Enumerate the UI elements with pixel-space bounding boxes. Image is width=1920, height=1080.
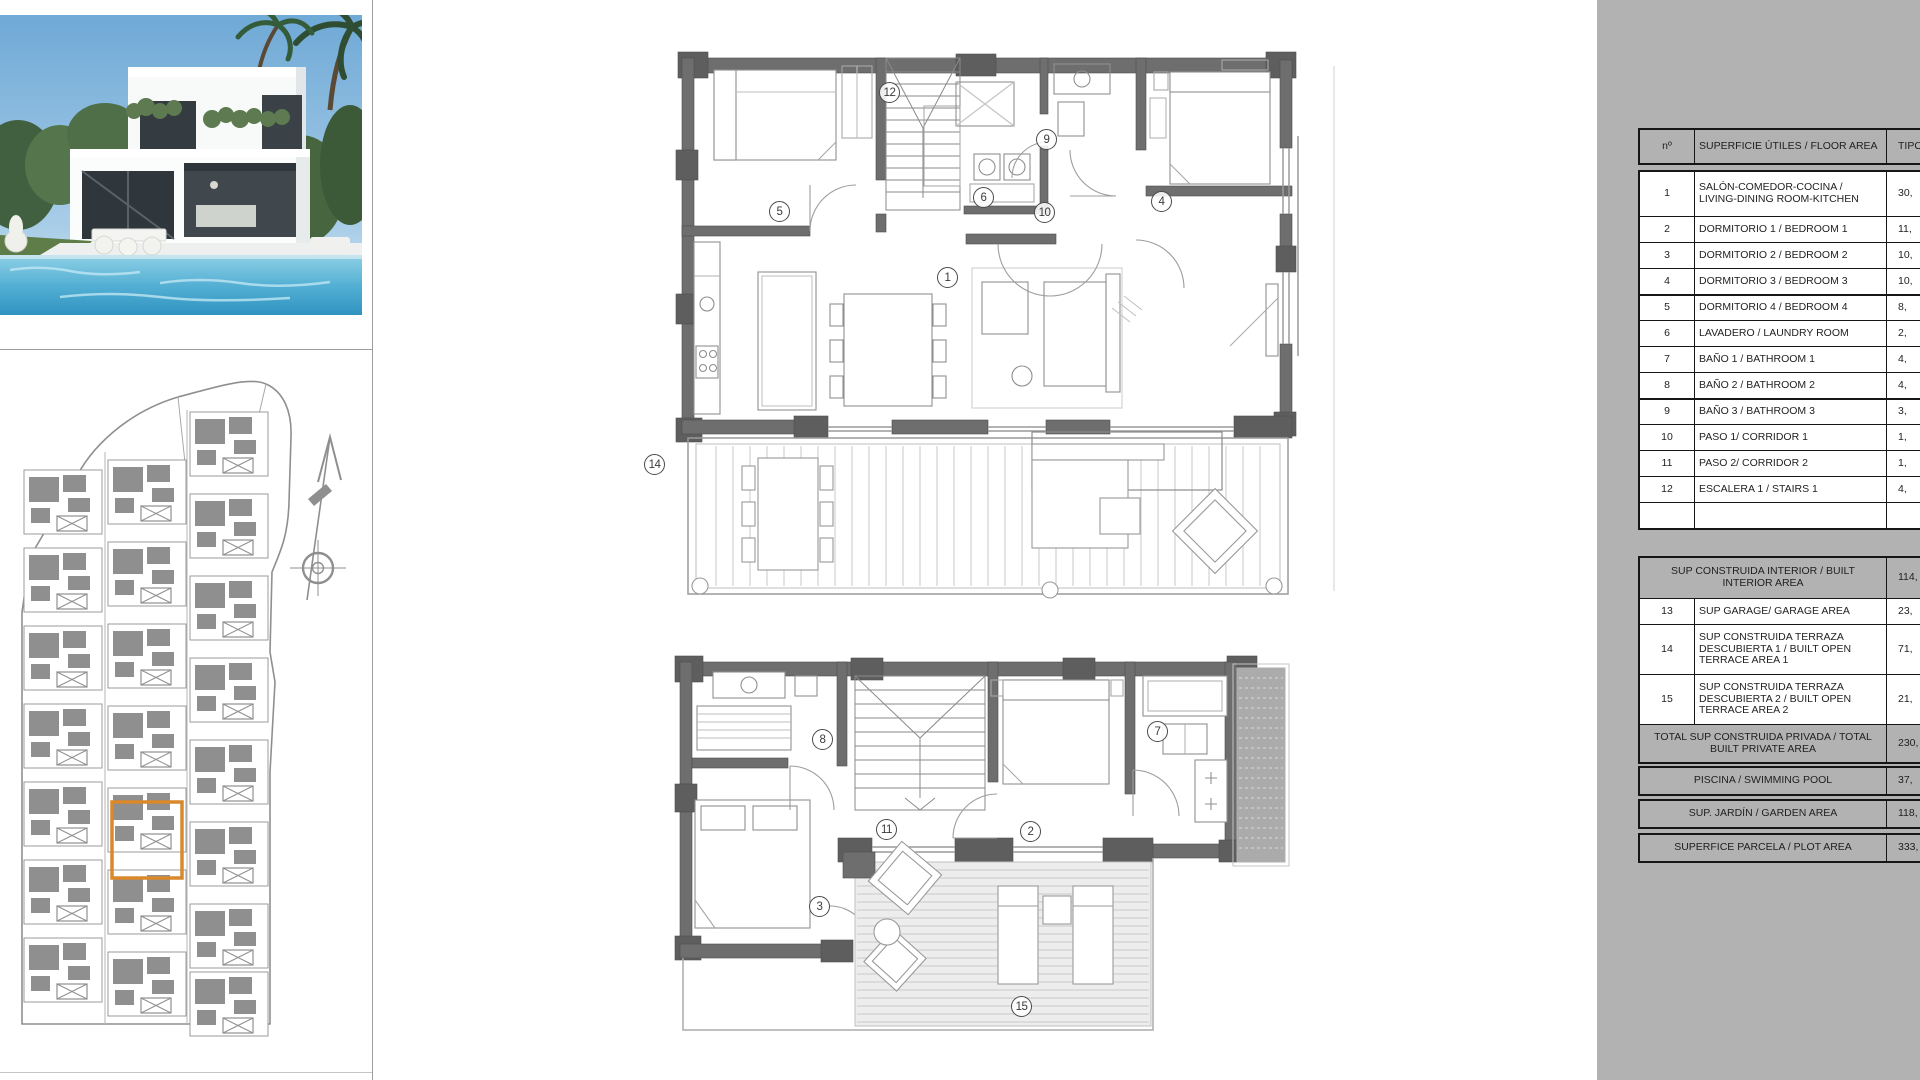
summary-row-interior: SUP CONSTRUIDA INTERIOR / BUILT INTERIOR… — [1640, 558, 1920, 598]
cell-label: SUPERFICIE ÚTILES / FLOOR AREA — [1694, 130, 1886, 163]
villa-photo-art — [0, 15, 362, 315]
cell-value: 3, — [1886, 400, 1920, 424]
table-row: 7BAÑO 1 / BATHROOM 14, — [1640, 346, 1920, 372]
room-marker-6: 6 — [973, 187, 994, 208]
cell-num: 3 — [1640, 243, 1694, 268]
cell-value: 23, — [1886, 599, 1920, 624]
cell-label: SUP. JARDÍN / GARDEN AREA — [1640, 801, 1886, 827]
table-row: 9BAÑO 3 / BATHROOM 33, — [1640, 398, 1920, 424]
cell-label: BAÑO 3 / BATHROOM 3 — [1694, 400, 1886, 424]
cell-label: PASO 1/ CORRIDOR 1 — [1694, 425, 1886, 450]
plot-row: SUPERFICE PARCELA / PLOT AREA333, — [1640, 835, 1920, 861]
summary-row-terrace2: 15SUP CONSTRUIDA TERRAZA DESCUBIERTA 2 /… — [1640, 674, 1920, 724]
cell-label: SUP CONSTRUIDA INTERIOR / BUILT INTERIOR… — [1640, 558, 1886, 598]
table-header-block: nºSUPERFICIE ÚTILES / FLOOR AREATIPO — [1638, 128, 1920, 165]
cell-num: nº — [1640, 130, 1694, 163]
cell-num: 5 — [1640, 296, 1694, 320]
table-row: 10PASO 1/ CORRIDOR 11, — [1640, 424, 1920, 450]
cell-label: PASO 2/ CORRIDOR 2 — [1694, 451, 1886, 476]
cell-num — [1640, 503, 1694, 528]
table-row: 4DORMITORIO 3 / BEDROOM 310, — [1640, 268, 1920, 294]
cell-label: SUP GARAGE/ GARAGE AREA — [1694, 599, 1886, 624]
cell-value: 10, — [1886, 243, 1920, 268]
cell-num: 1 — [1640, 172, 1694, 216]
cell-label: BAÑO 1 / BATHROOM 1 — [1694, 347, 1886, 372]
photo-divider — [0, 349, 372, 350]
cell-label: TOTAL SUP CONSTRUIDA PRIVADA / TOTAL BUI… — [1640, 725, 1886, 762]
site-plan — [8, 352, 368, 1042]
cell-num: 12 — [1640, 477, 1694, 502]
cell-num: 8 — [1640, 373, 1694, 398]
empty-row — [1640, 502, 1920, 528]
cell-value: 4, — [1886, 477, 1920, 502]
cell-label: ESCALERA 1 / STAIRS 1 — [1694, 477, 1886, 502]
floor-plan-lower-drawing — [655, 648, 1295, 1048]
cell-label: DORMITORIO 2 / BEDROOM 2 — [1694, 243, 1886, 268]
table-row: 8BAÑO 2 / BATHROOM 24, — [1640, 372, 1920, 398]
cell-num: 15 — [1640, 675, 1694, 724]
site-plan-drawing — [8, 352, 368, 1042]
cell-num: 9 — [1640, 400, 1694, 424]
cell-value: 71, — [1886, 625, 1920, 674]
cell-num: 2 — [1640, 217, 1694, 242]
cell-value: 1, — [1886, 451, 1920, 476]
cell-value: 30, — [1886, 172, 1920, 216]
cell-value: 230, — [1886, 725, 1920, 762]
room-marker-2: 2 — [1020, 821, 1041, 842]
plot-block: SUPERFICE PARCELA / PLOT AREA333, — [1638, 833, 1920, 863]
vertical-divider — [372, 0, 373, 1080]
room-marker-3: 3 — [809, 896, 830, 917]
cell-value — [1886, 503, 1920, 528]
table-row: 2DORMITORIO 1 / BEDROOM 111, — [1640, 216, 1920, 242]
room-marker-5: 5 — [769, 201, 790, 222]
cell-label: DORMITORIO 1 / BEDROOM 1 — [1694, 217, 1886, 242]
summary-row-total: TOTAL SUP CONSTRUIDA PRIVADA / TOTAL BUI… — [1640, 724, 1920, 762]
room-marker-12: 12 — [879, 82, 900, 103]
cell-label: LAVADERO / LAUNDRY ROOM — [1694, 321, 1886, 346]
north-arrow-compass — [290, 437, 346, 600]
cell-value: 21, — [1886, 675, 1920, 724]
cell-num: 10 — [1640, 425, 1694, 450]
cell-value: 37, — [1886, 768, 1920, 794]
room-marker-14: 14 — [644, 454, 665, 475]
summary-row-terrace1: 14SUP CONSTRUIDA TERRAZA DESCUBIERTA 1 /… — [1640, 624, 1920, 674]
cell-value: 114, — [1886, 558, 1920, 598]
cell-label — [1694, 503, 1886, 528]
garden-row: SUP. JARDÍN / GARDEN AREA118, — [1640, 801, 1920, 827]
pool-row: PISCINA / SWIMMING POOL37, — [1640, 768, 1920, 794]
cell-num: 7 — [1640, 347, 1694, 372]
table-row: 6LAVADERO / LAUNDRY ROOM2, — [1640, 320, 1920, 346]
room-marker-7: 7 — [1147, 721, 1168, 742]
pool-block: PISCINA / SWIMMING POOL37, — [1638, 766, 1920, 796]
room-marker-9: 9 — [1036, 129, 1057, 150]
cell-value: 118, — [1886, 801, 1920, 827]
table-row: 5DORMITORIO 4 / BEDROOM 48, — [1640, 294, 1920, 320]
room-marker-10: 10 — [1034, 202, 1055, 223]
header-row: nºSUPERFICIE ÚTILES / FLOOR AREATIPO — [1640, 130, 1920, 163]
villa-photo — [0, 15, 362, 315]
table-row: 1SALÓN-COMEDOR-COCINA / LIVING-DINING RO… — [1640, 172, 1920, 216]
cell-value: 8, — [1886, 296, 1920, 320]
cell-label: DORMITORIO 4 / BEDROOM 4 — [1694, 296, 1886, 320]
cell-label: SUPERFICE PARCELA / PLOT AREA — [1640, 835, 1886, 861]
summary-row-garage: 13SUP GARAGE/ GARAGE AREA23, — [1640, 598, 1920, 624]
cell-num: 14 — [1640, 625, 1694, 674]
cell-value: 10, — [1886, 269, 1920, 294]
room-marker-15: 15 — [1011, 996, 1032, 1017]
room-marker-11: 11 — [876, 819, 897, 840]
cell-value: 1, — [1886, 425, 1920, 450]
table-row: 12ESCALERA 1 / STAIRS 14, — [1640, 476, 1920, 502]
cell-num: 4 — [1640, 269, 1694, 294]
table-row: 3DORMITORIO 2 / BEDROOM 210, — [1640, 242, 1920, 268]
floor-plan-lower — [655, 648, 1295, 1048]
cell-value: 11, — [1886, 217, 1920, 242]
cell-label: BAÑO 2 / BATHROOM 2 — [1694, 373, 1886, 398]
cell-value: 2, — [1886, 321, 1920, 346]
room-marker-1: 1 — [937, 267, 958, 288]
cell-value: TIPO — [1886, 130, 1920, 163]
cell-label: SALÓN-COMEDOR-COCINA / LIVING-DINING ROO… — [1694, 172, 1886, 216]
cell-label: DORMITORIO 3 / BEDROOM 3 — [1694, 269, 1886, 294]
table-row: 11PASO 2/ CORRIDOR 21, — [1640, 450, 1920, 476]
garden-block: SUP. JARDÍN / GARDEN AREA118, — [1638, 799, 1920, 829]
cell-num: 11 — [1640, 451, 1694, 476]
cell-value: 4, — [1886, 347, 1920, 372]
room-marker-8: 8 — [812, 729, 833, 750]
floor-plan-upper — [630, 46, 1340, 606]
bottom-divider — [0, 1072, 372, 1073]
area-table-panel: nºSUPERFICIE ÚTILES / FLOOR AREATIPO1SAL… — [1597, 0, 1920, 1080]
floor-plan-upper-drawing — [630, 46, 1340, 606]
cell-value: 333, — [1886, 835, 1920, 861]
cell-num: 6 — [1640, 321, 1694, 346]
plan-sheet-page: { "colors": { "accent_orange": "#D9882B"… — [0, 0, 1920, 1080]
cell-label: SUP CONSTRUIDA TERRAZA DESCUBIERTA 1 / B… — [1694, 625, 1886, 674]
table-summary-block: SUP CONSTRUIDA INTERIOR / BUILT INTERIOR… — [1638, 556, 1920, 764]
cell-label: PISCINA / SWIMMING POOL — [1640, 768, 1886, 794]
cell-label: SUP CONSTRUIDA TERRAZA DESCUBIERTA 2 / B… — [1694, 675, 1886, 724]
room-marker-4: 4 — [1151, 191, 1172, 212]
cell-value: 4, — [1886, 373, 1920, 398]
cell-num: 13 — [1640, 599, 1694, 624]
table-rooms-block: 1SALÓN-COMEDOR-COCINA / LIVING-DINING RO… — [1638, 170, 1920, 530]
